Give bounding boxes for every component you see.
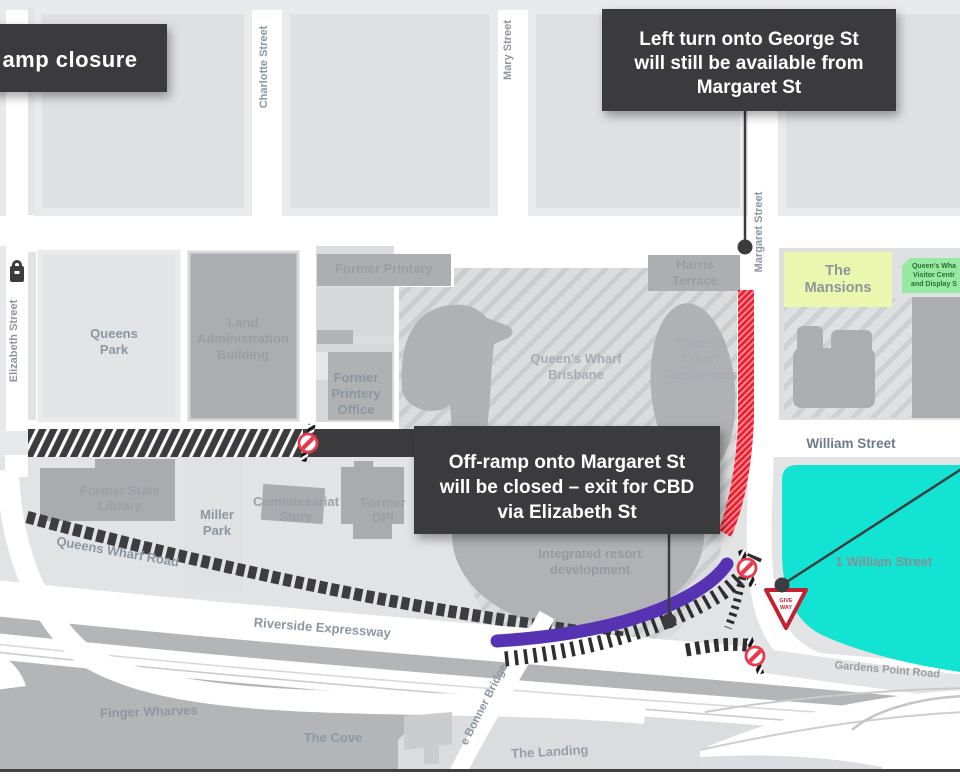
svg-text:Left turn onto George St: Left turn onto George St [639,29,859,50]
svg-text:Queens: Queens [90,326,138,341]
svg-text:Office: Office [338,402,375,417]
svg-text:Brisbane: Brisbane [548,367,604,382]
svg-text:Charlotte Street: Charlotte Street [258,25,270,108]
svg-text:Mary Street: Mary Street [502,20,514,80]
svg-text:Building: Building [217,347,269,362]
svg-text:Administration: Administration [197,331,289,346]
svg-text:DPI: DPI [372,510,394,525]
svg-text:via Elizabeth St: via Elizabeth St [497,502,637,523]
svg-text:Queen's Wharf: Queen's Wharf [530,351,622,366]
svg-text:GIVE: GIVE [779,598,792,604]
svg-text:Visitor Centr: Visitor Centr [913,272,955,279]
svg-text:Mansions: Mansions [805,280,872,296]
svg-text:Residences: Residences [665,367,737,382]
svg-text:William Street: William Street [806,436,896,451]
svg-text:and Display S: and Display S [911,281,957,288]
svg-text:Margaret Street: Margaret Street [753,191,765,272]
svg-text:Harris: Harris [676,257,714,272]
svg-text:The Cove: The Cove [304,730,363,745]
svg-text:Former: Former [334,370,379,385]
svg-text:Integrated resort: Integrated resort [538,546,642,561]
svg-text:1 William Street: 1 William Street [836,554,933,569]
svg-text:Queen's: Queen's [676,335,727,350]
svg-text:Commissariat: Commissariat [253,494,340,509]
svg-text:The: The [825,263,851,279]
svg-text:development: development [550,562,631,577]
svg-text:Terrace: Terrace [672,273,718,288]
svg-text:Margaret St: Margaret St [697,77,802,98]
svg-text:Elizabeth Street: Elizabeth Street [8,299,20,382]
svg-text:Former: Former [361,495,406,510]
svg-text:Miller: Miller [200,507,234,522]
svg-text:Wharf: Wharf [683,351,721,366]
svg-text:Queen's Wha: Queen's Wha [912,263,956,270]
svg-text:Park: Park [100,342,129,357]
svg-text:Printery: Printery [331,386,381,401]
svg-text:will be closed – exit for CBD: will be closed – exit for CBD [439,477,694,498]
svg-text:amp closure: amp closure [2,47,137,72]
svg-text:Land: Land [227,315,258,330]
svg-text:WAY: WAY [780,605,792,611]
svg-text:Library: Library [98,498,143,513]
svg-text:will still be available from: will still be available from [633,53,863,74]
svg-text:Former State: Former State [80,483,160,498]
svg-text:Off-ramp onto Margaret St: Off-ramp onto Margaret St [449,452,686,473]
svg-text:Former Printery: Former Printery [335,261,433,276]
svg-text:Park: Park [203,523,232,538]
svg-text:Store: Store [279,509,312,524]
